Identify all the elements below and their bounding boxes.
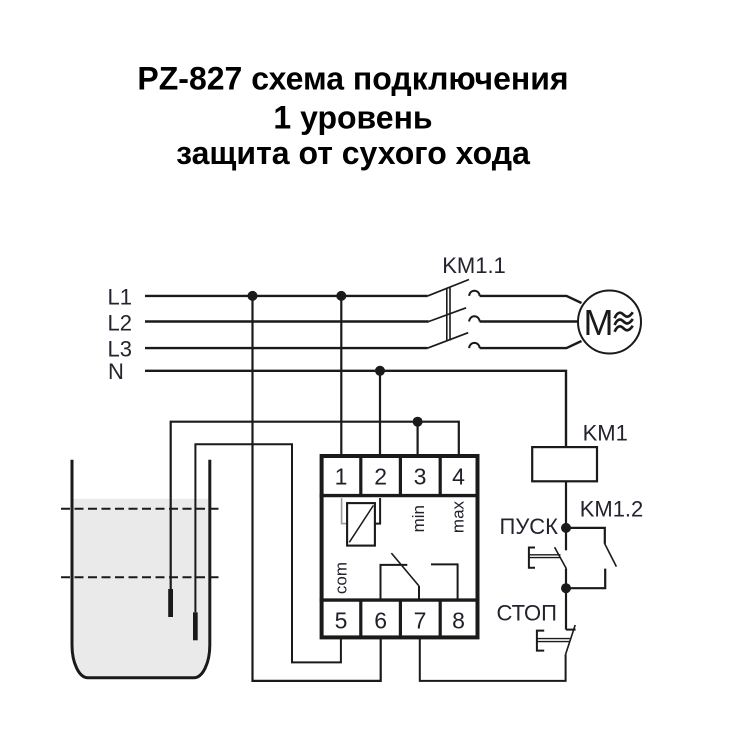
svg-text:L1: L1 — [108, 284, 132, 309]
svg-text:com: com — [331, 562, 350, 594]
svg-text:PZ-827 схема подключения: PZ-827 схема подключения — [137, 61, 568, 97]
svg-text:7: 7 — [414, 607, 427, 633]
svg-text:защита от сухого хода: защита от сухого хода — [176, 135, 530, 171]
svg-text:СТОП: СТОП — [496, 601, 557, 626]
svg-text:L2: L2 — [108, 310, 132, 335]
svg-text:2: 2 — [374, 464, 387, 490]
svg-text:M: M — [584, 302, 614, 343]
svg-text:5: 5 — [335, 607, 348, 633]
svg-text:3: 3 — [414, 464, 427, 490]
svg-text:6: 6 — [374, 607, 387, 633]
svg-text:min: min — [409, 505, 428, 532]
svg-text:4: 4 — [452, 464, 465, 490]
svg-text:KM1.2: KM1.2 — [580, 497, 644, 522]
svg-text:KM1: KM1 — [583, 421, 628, 446]
svg-text:1: 1 — [335, 464, 348, 490]
svg-text:1 уровень: 1 уровень — [273, 99, 432, 135]
svg-text:N: N — [108, 359, 124, 384]
svg-text:KM1.1: KM1.1 — [442, 253, 506, 278]
svg-text:8: 8 — [452, 607, 465, 633]
svg-text:max: max — [449, 500, 468, 533]
svg-text:L3: L3 — [108, 337, 132, 362]
svg-text:ПУСК: ПУСК — [500, 514, 559, 539]
